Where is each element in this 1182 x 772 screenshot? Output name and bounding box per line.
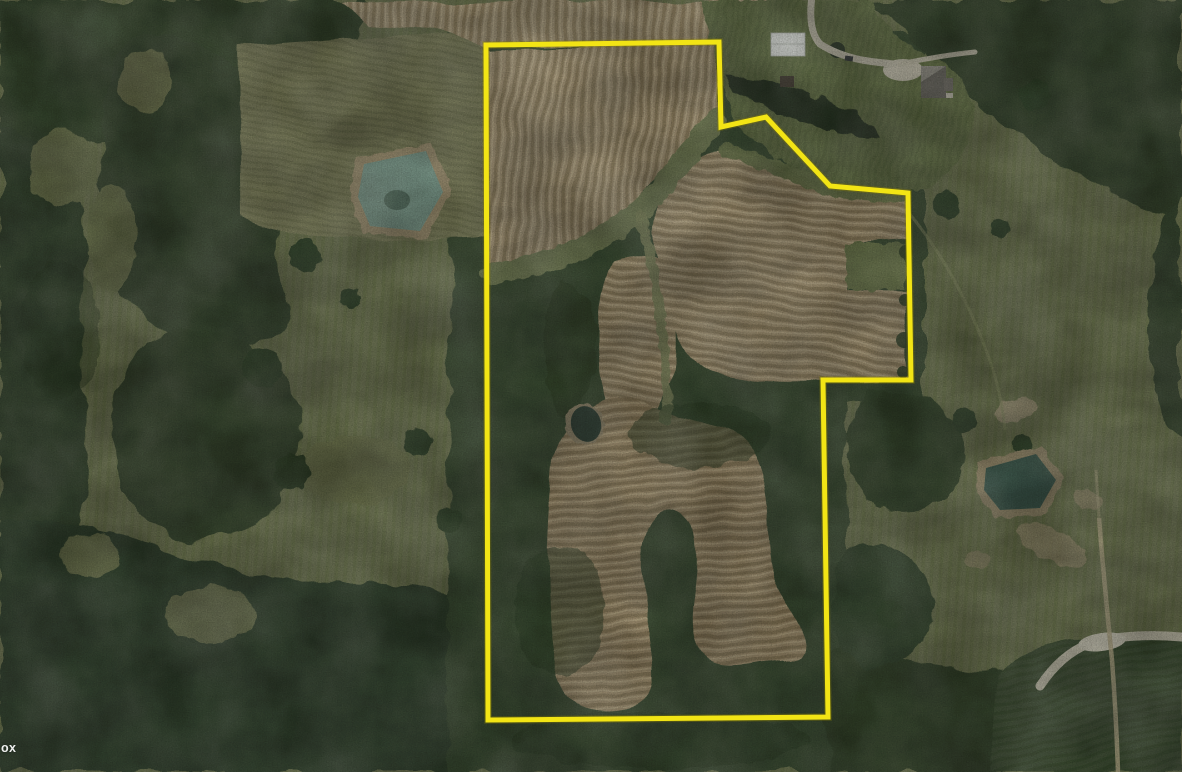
satellite-map-canvas[interactable] (0, 0, 1182, 772)
map-attribution: ox (1, 741, 16, 755)
map-viewport[interactable]: ox (0, 0, 1182, 772)
imagery-noise-overlay (0, 0, 1182, 772)
haze-veil (0, 0, 1182, 772)
